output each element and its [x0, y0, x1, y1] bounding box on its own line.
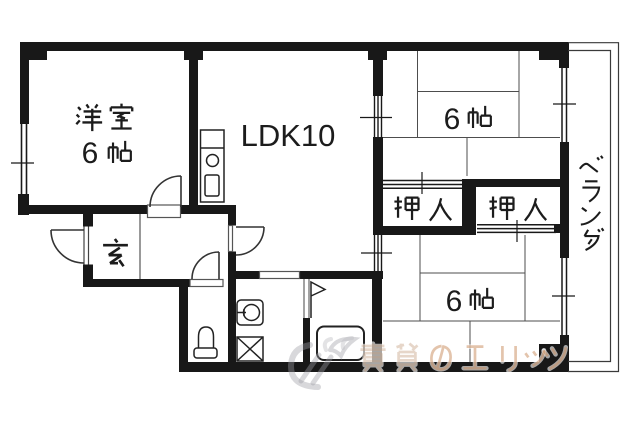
svg-text:6: 6	[444, 103, 461, 136]
svg-text:LDK10: LDK10	[241, 118, 336, 153]
svg-text:6: 6	[446, 285, 463, 318]
svg-text:6: 6	[82, 137, 99, 170]
